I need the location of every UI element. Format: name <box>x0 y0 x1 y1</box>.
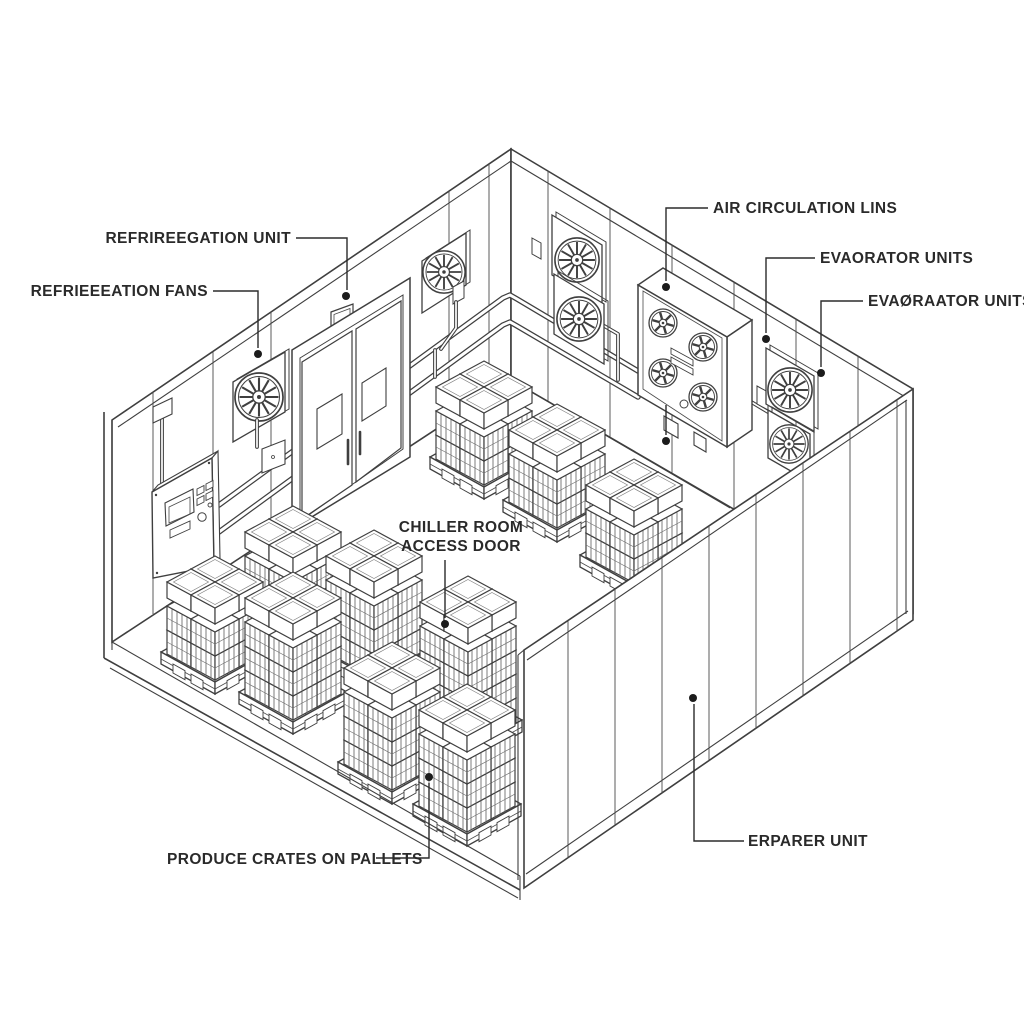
panel-knob <box>198 513 206 521</box>
wall-fan-icon <box>555 238 599 282</box>
wall-fan-icon <box>770 425 808 463</box>
label-refrigeration-fans: REFRIEEEATION FANS <box>31 283 208 300</box>
pallet-stack-left-center <box>239 572 347 734</box>
wall-fan-icon <box>768 368 812 412</box>
evaporator-fan-icon <box>689 333 717 361</box>
chiller-room-diagram: REFRIREEGATION UNIT REFRIEEEATION FANS A… <box>0 0 1024 1024</box>
label-chiller-room-1: CHILLER ROOM <box>399 519 524 536</box>
label-erparer-unit: ERPARER UNIT <box>748 833 868 850</box>
evaporator-fan-icon <box>649 309 677 337</box>
label-refrigeration-unit: REFRIREEGATION UNIT <box>105 230 291 247</box>
evaporator-fan-icon <box>689 383 717 411</box>
wall-fan-icon <box>557 297 601 341</box>
label-evaporator-upper: EVAORATOR UNITS <box>820 250 973 267</box>
label-evaporator-lower: EVAØRAATOR UNITS <box>868 293 1024 310</box>
label-chiller-room-2: ACCESS DOOR <box>401 538 521 555</box>
label-produce-crates: PRODUCE CRATES ON PALLETS <box>167 851 423 868</box>
label-air-circulation: AIR CIRCULATION LINS <box>713 200 897 217</box>
wall-fan-icon <box>235 373 283 421</box>
